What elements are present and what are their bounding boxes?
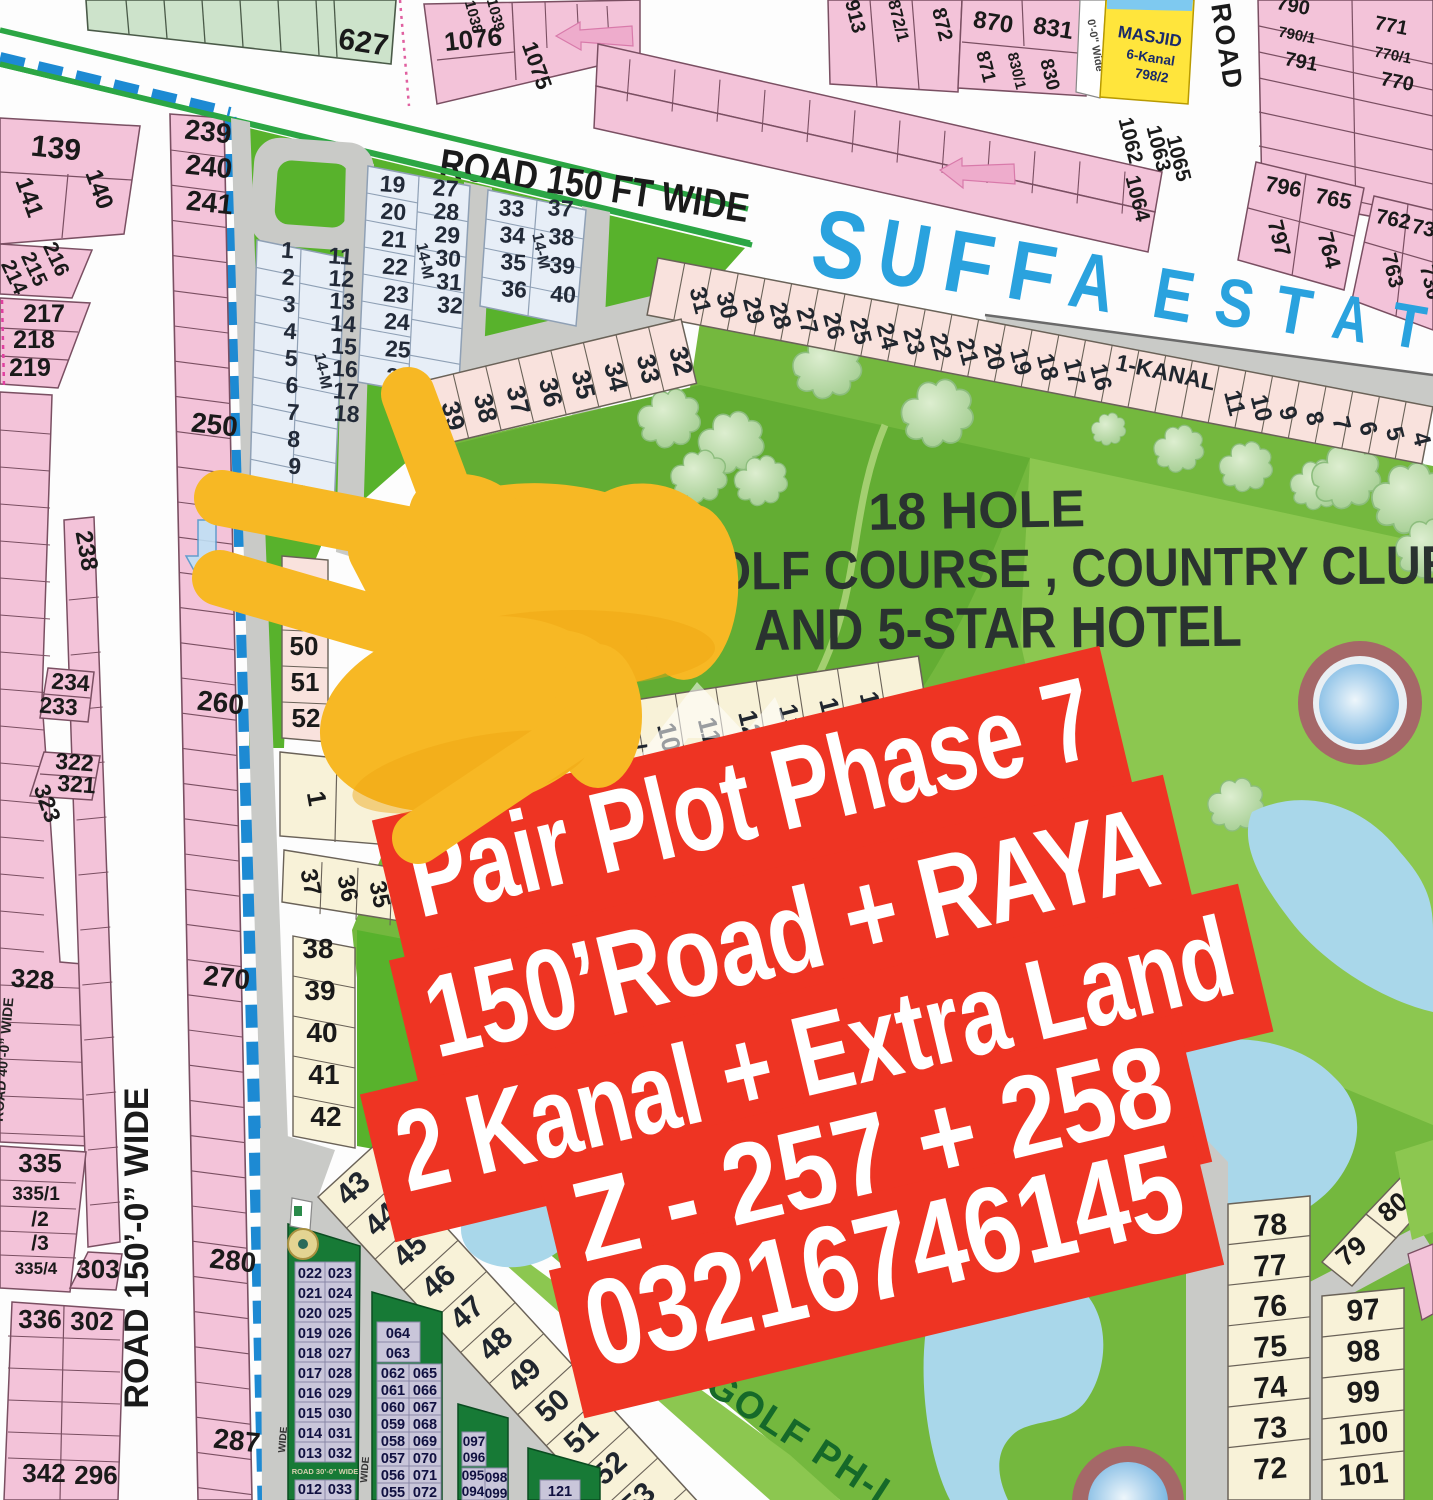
svg-text:296: 296 xyxy=(74,1460,117,1490)
svg-text:020: 020 xyxy=(298,1306,322,1322)
svg-text:024: 024 xyxy=(328,1286,352,1302)
svg-text:99: 99 xyxy=(1346,1375,1382,1410)
svg-text:066: 066 xyxy=(413,1383,437,1399)
svg-text:22: 22 xyxy=(382,253,409,281)
svg-text:328: 328 xyxy=(10,963,55,996)
svg-text:ROAD 150’-0” WIDE: ROAD 150’-0” WIDE xyxy=(118,1087,156,1408)
svg-text:057: 057 xyxy=(381,1451,405,1467)
svg-text:218: 218 xyxy=(13,326,55,354)
svg-text:335: 335 xyxy=(18,1148,61,1178)
svg-text:2: 2 xyxy=(281,264,296,291)
svg-text:40: 40 xyxy=(550,280,577,308)
svg-text:121: 121 xyxy=(548,1484,572,1500)
svg-text:WIDE: WIDE xyxy=(277,1426,290,1453)
svg-text:303: 303 xyxy=(76,1254,119,1284)
svg-text:77: 77 xyxy=(1253,1248,1289,1283)
svg-text:ROAD 30’-0" WIDE: ROAD 30’-0" WIDE xyxy=(292,1467,358,1476)
svg-text:19: 19 xyxy=(379,170,406,198)
svg-text:25: 25 xyxy=(384,335,412,363)
svg-text:100: 100 xyxy=(1337,1415,1389,1451)
svg-text:20: 20 xyxy=(380,198,407,226)
svg-text:014: 014 xyxy=(298,1426,322,1442)
svg-text:098: 098 xyxy=(485,1470,508,1485)
svg-text:016: 016 xyxy=(298,1386,322,1402)
svg-text:35: 35 xyxy=(500,248,528,276)
svg-text:335/1: 335/1 xyxy=(12,1184,60,1205)
svg-text:071: 071 xyxy=(413,1468,437,1484)
svg-text:72: 72 xyxy=(1253,1451,1289,1486)
svg-text:5: 5 xyxy=(284,345,299,372)
svg-text:321: 321 xyxy=(57,770,97,799)
svg-text:/2: /2 xyxy=(31,1208,49,1231)
svg-text:217: 217 xyxy=(23,300,65,328)
svg-text:98: 98 xyxy=(1346,1334,1382,1369)
svg-text:24: 24 xyxy=(383,308,411,336)
svg-text:023: 023 xyxy=(328,1266,352,1282)
svg-text:76: 76 xyxy=(1253,1289,1289,1324)
svg-text:/3: /3 xyxy=(31,1232,49,1255)
svg-text:41: 41 xyxy=(308,1059,339,1090)
svg-text:280: 280 xyxy=(208,1243,258,1279)
svg-text:36: 36 xyxy=(501,275,528,303)
svg-text:061: 061 xyxy=(381,1383,405,1399)
svg-text:18 HOLE: 18 HOLE xyxy=(868,480,1086,542)
svg-text:031: 031 xyxy=(328,1426,352,1442)
svg-text:032: 032 xyxy=(328,1446,352,1462)
svg-text:030: 030 xyxy=(328,1406,352,1422)
svg-text:250: 250 xyxy=(190,407,240,443)
svg-text:33: 33 xyxy=(498,194,525,222)
svg-text:21: 21 xyxy=(381,225,409,253)
svg-text:064: 064 xyxy=(386,1326,410,1342)
svg-text:026: 026 xyxy=(328,1326,352,1342)
svg-text:97: 97 xyxy=(1346,1293,1382,1328)
svg-text:270: 270 xyxy=(202,960,252,996)
svg-text:033: 033 xyxy=(328,1482,352,1498)
svg-text:4: 4 xyxy=(283,318,298,345)
svg-text:74: 74 xyxy=(1253,1370,1289,1405)
svg-text:012: 012 xyxy=(298,1482,322,1498)
svg-text:096: 096 xyxy=(463,1450,486,1465)
svg-text:021: 021 xyxy=(298,1286,322,1302)
svg-text:058: 058 xyxy=(381,1434,405,1450)
svg-text:067: 067 xyxy=(413,1400,437,1416)
svg-text:139: 139 xyxy=(29,130,82,168)
svg-text:38: 38 xyxy=(302,933,333,964)
svg-text:336: 336 xyxy=(18,1304,61,1334)
svg-text:73: 73 xyxy=(1253,1411,1289,1446)
svg-text:39: 39 xyxy=(304,975,335,1006)
svg-text:241: 241 xyxy=(185,185,235,221)
svg-text:7: 7 xyxy=(286,399,301,426)
svg-text:060: 060 xyxy=(381,1400,405,1416)
svg-text:062: 062 xyxy=(381,1366,405,1382)
svg-text:056: 056 xyxy=(381,1468,405,1484)
svg-text:097: 097 xyxy=(463,1434,486,1449)
svg-text:40: 40 xyxy=(306,1017,337,1048)
svg-text:063: 063 xyxy=(386,1346,410,1362)
svg-text:095: 095 xyxy=(462,1468,485,1483)
svg-text:027: 027 xyxy=(328,1346,352,1362)
svg-text:52: 52 xyxy=(292,703,321,733)
svg-text:3: 3 xyxy=(282,291,297,318)
svg-text:6: 6 xyxy=(285,372,300,399)
svg-text:37: 37 xyxy=(547,194,574,222)
svg-text:019: 019 xyxy=(298,1326,322,1342)
svg-text:36: 36 xyxy=(331,873,363,905)
svg-text:34: 34 xyxy=(499,221,527,249)
svg-text:32: 32 xyxy=(436,291,463,319)
svg-text:013: 013 xyxy=(298,1446,322,1462)
svg-text:38: 38 xyxy=(548,223,576,251)
svg-text:1: 1 xyxy=(280,237,295,264)
svg-text:335/4: 335/4 xyxy=(15,1259,58,1278)
svg-text:015: 015 xyxy=(298,1406,322,1422)
svg-text:18: 18 xyxy=(333,400,361,428)
svg-text:029: 029 xyxy=(328,1386,352,1402)
svg-text:233: 233 xyxy=(39,692,79,721)
svg-text:42: 42 xyxy=(310,1101,341,1132)
svg-text:219: 219 xyxy=(9,354,51,382)
svg-text:1076: 1076 xyxy=(443,21,504,57)
svg-text:022: 022 xyxy=(298,1266,322,1282)
svg-text:101: 101 xyxy=(1337,1456,1389,1492)
svg-text:094: 094 xyxy=(462,1484,485,1499)
svg-text:9: 9 xyxy=(287,453,302,480)
svg-text:025: 025 xyxy=(328,1306,352,1322)
svg-text:37: 37 xyxy=(294,867,326,899)
svg-text:059: 059 xyxy=(381,1417,405,1433)
svg-text:018: 018 xyxy=(298,1346,322,1362)
svg-text:WIDE: WIDE xyxy=(359,1456,372,1483)
svg-text:068: 068 xyxy=(413,1417,437,1433)
svg-text:50: 50 xyxy=(290,631,319,661)
svg-text:070: 070 xyxy=(413,1451,437,1467)
svg-text:8: 8 xyxy=(287,426,302,453)
svg-text:78: 78 xyxy=(1253,1208,1289,1243)
svg-text:260: 260 xyxy=(196,685,246,721)
svg-text:75: 75 xyxy=(1253,1330,1289,1365)
svg-text:GOLF COURSE , COUNTRY CLUB: GOLF COURSE , COUNTRY CLUB xyxy=(676,535,1433,602)
svg-text:AND 5-STAR HOTEL: AND 5-STAR HOTEL xyxy=(754,594,1243,663)
svg-text:240: 240 xyxy=(184,149,234,185)
svg-text:072: 072 xyxy=(413,1485,437,1500)
svg-text:302: 302 xyxy=(70,1306,113,1336)
svg-text:055: 055 xyxy=(381,1485,405,1500)
svg-text:028: 028 xyxy=(328,1366,352,1382)
svg-text:287: 287 xyxy=(212,1423,262,1459)
svg-text:065: 065 xyxy=(413,1366,437,1382)
svg-text:099: 099 xyxy=(485,1486,508,1500)
svg-text:23: 23 xyxy=(382,280,409,308)
svg-text:017: 017 xyxy=(298,1366,322,1382)
svg-text:51: 51 xyxy=(291,667,320,697)
svg-text:069: 069 xyxy=(413,1434,437,1450)
svg-text:342: 342 xyxy=(22,1458,65,1488)
